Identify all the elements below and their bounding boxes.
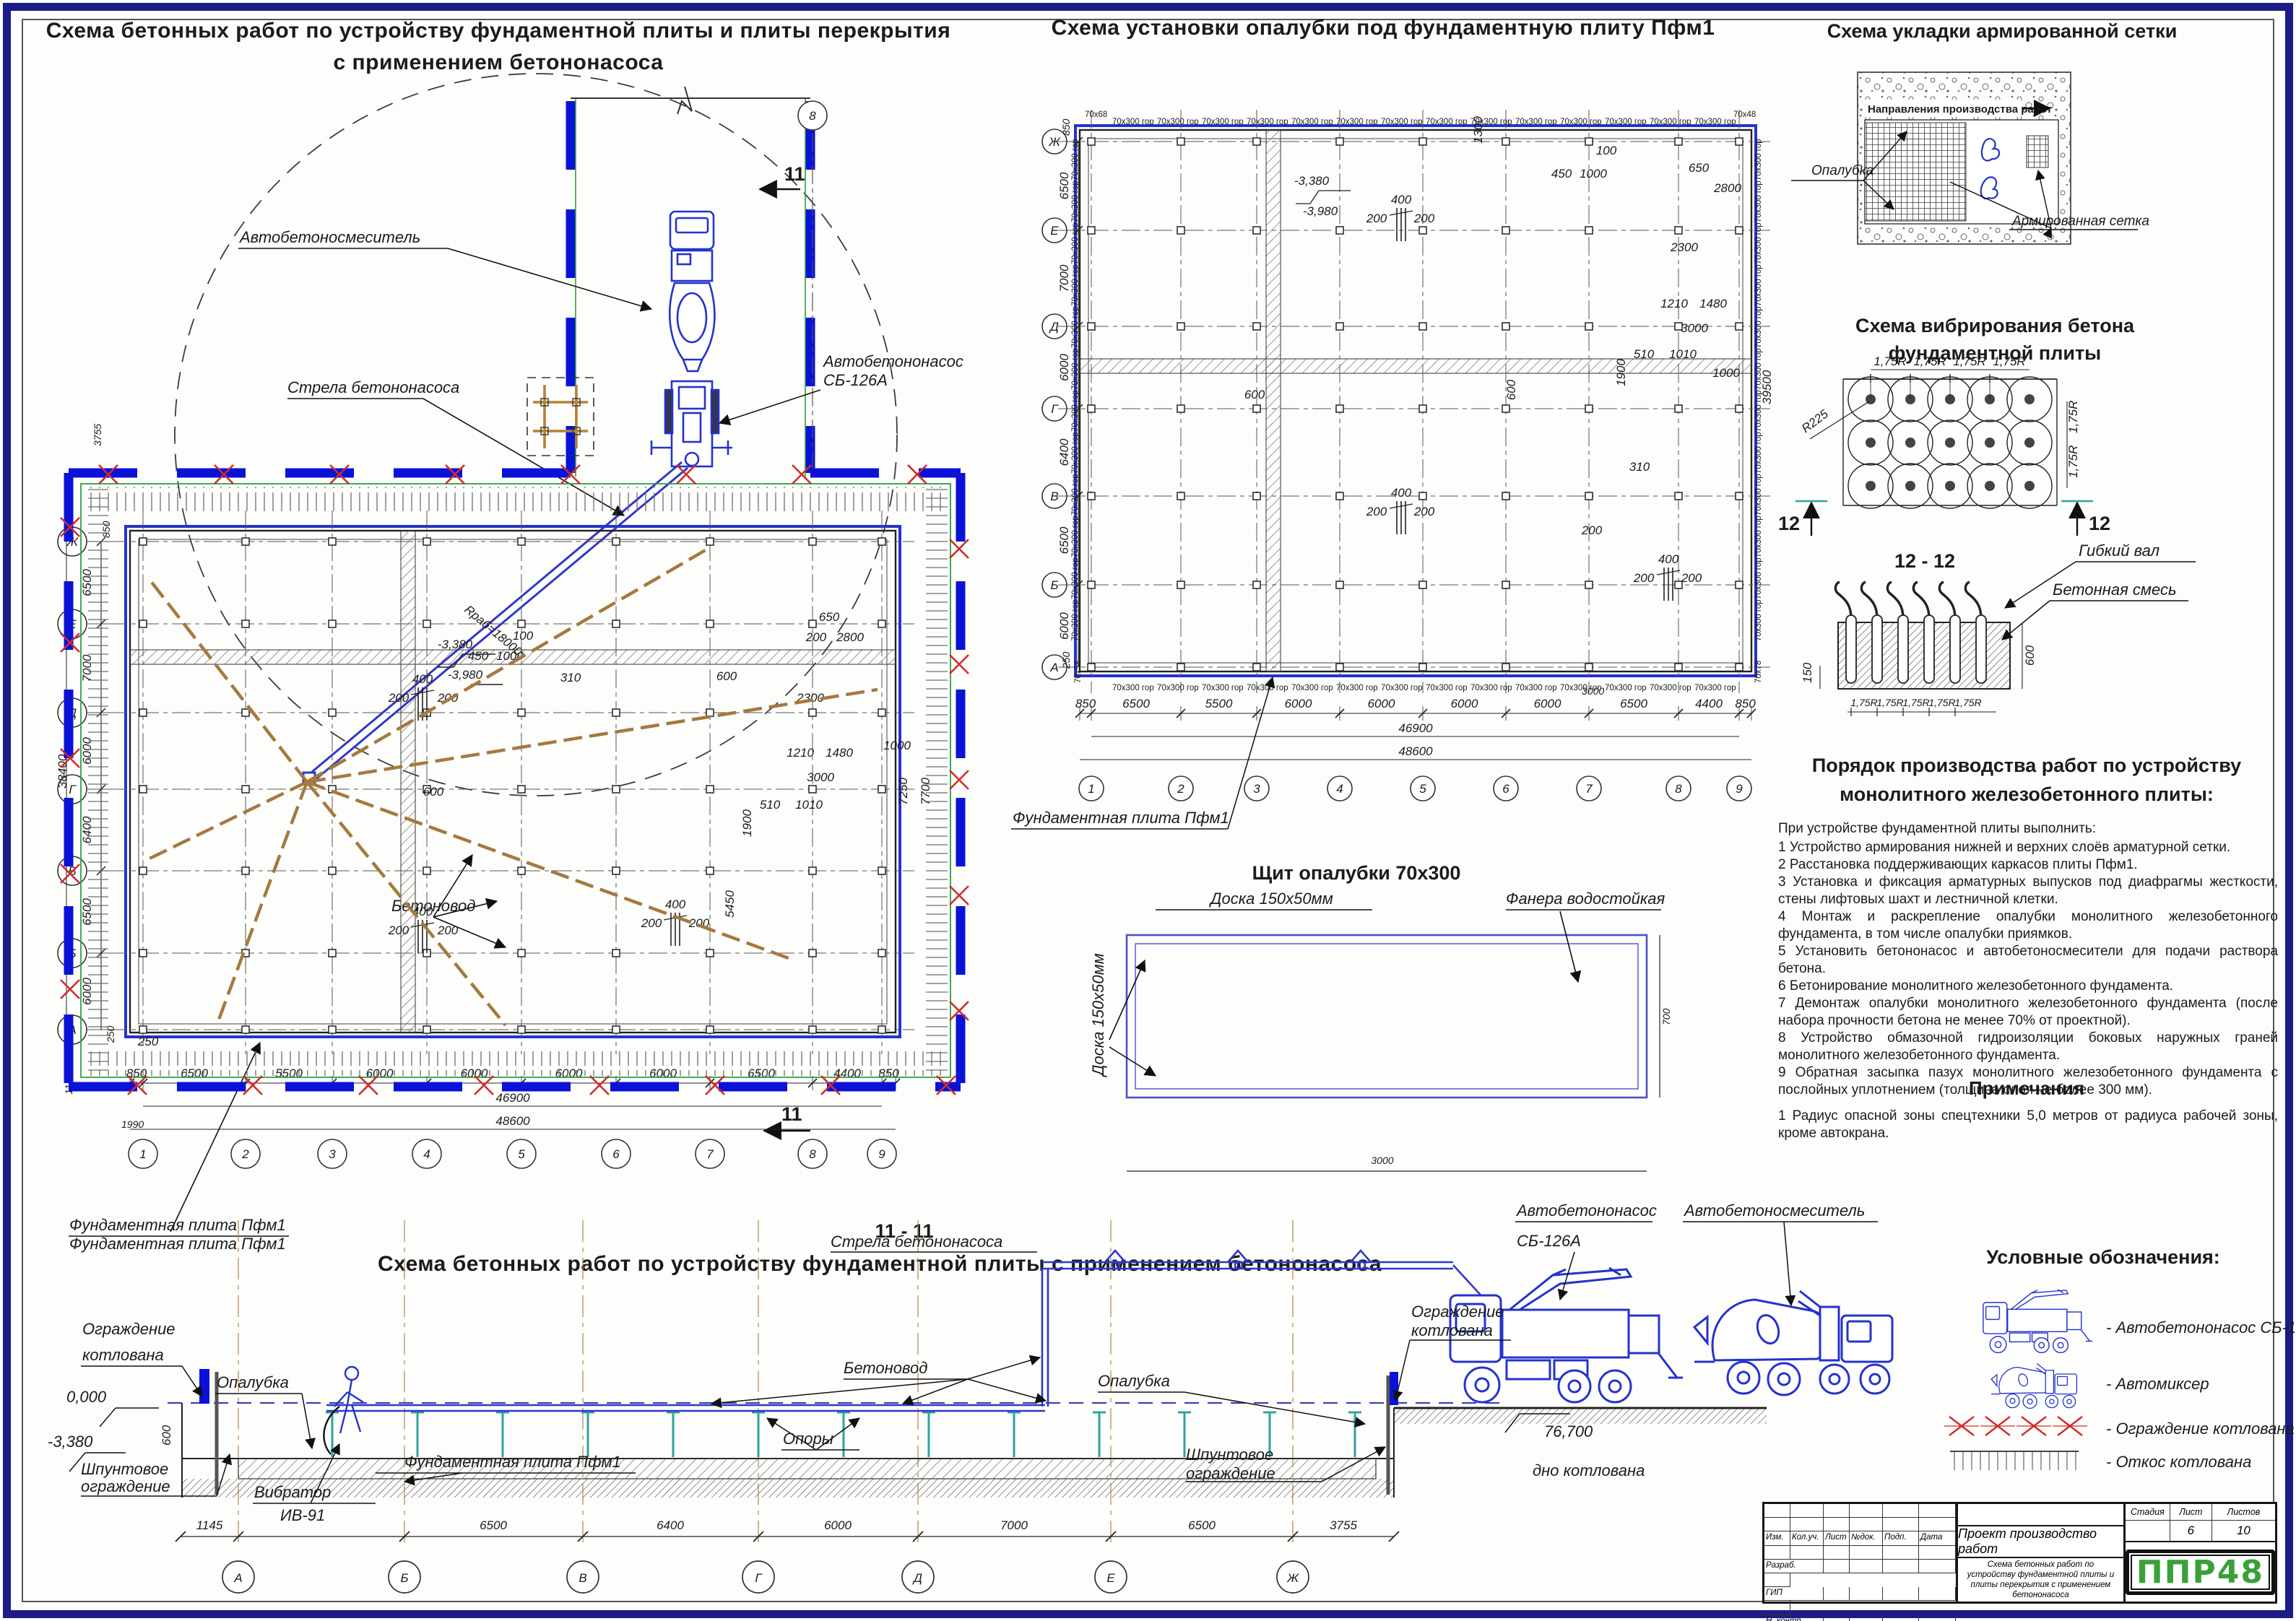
dim-label: 1480 — [1699, 297, 1727, 310]
tb-cell — [1919, 1504, 1956, 1518]
panel-detail-title: Щит опалубки 70х300 — [1252, 862, 1461, 884]
fence-x-mark — [61, 980, 79, 999]
formwork-edge-label: 70х300 гор — [1754, 432, 1763, 474]
formwork-edge-label: 70х300 гор — [1426, 118, 1468, 126]
formwork-edge-label: 70х300 гор — [1694, 684, 1736, 692]
dim-label: 70х68 — [1085, 110, 1107, 119]
dim-label: 70х58 — [1074, 661, 1083, 683]
dim-label: -3,380 — [1294, 174, 1330, 188]
section-12-12: 12 - 12 Гибкий вал Бетонная смесь 150 60… — [1801, 542, 2196, 716]
sheet-value: 6 — [2170, 1521, 2212, 1541]
dim-label: 200 — [1581, 523, 1603, 537]
section12-title: 12 - 12 — [1894, 550, 1955, 572]
formwork-edge-label: 70х300 гор — [1071, 264, 1080, 306]
formwork-edge-label: 70х300 гор — [1515, 684, 1557, 692]
dim-label: 1,75R — [1873, 355, 1906, 368]
tb-col-header: Изм. — [1764, 1531, 1790, 1545]
grid-bubble-col: 4 — [1336, 782, 1343, 796]
grid-bubble-col: 1 — [1088, 782, 1094, 796]
dim-label: 200 — [1413, 212, 1435, 225]
formwork-edge-label: 70х300 гор — [1754, 516, 1763, 557]
formwork-edge-label: 70х300 гор — [1754, 390, 1763, 432]
dim-label: 1,75R — [1902, 697, 1929, 708]
tb-cell — [1883, 1504, 1919, 1518]
tb-cell — [1919, 1560, 1956, 1573]
notes-text: 1 Радиус опасной зоны спецтехники 5,0 ме… — [1778, 1108, 2278, 1142]
formwork-edge-label: 70х300 гор — [1247, 684, 1288, 692]
mesh-scheme: Схема укладки армированной сетки Направл… — [1791, 20, 2177, 244]
dim-label: 850 — [1060, 118, 1072, 136]
work-order-item: 3 Установка и фиксация арматурных выпуск… — [1778, 874, 2278, 908]
grid-bubble-col: 4 — [423, 1147, 430, 1161]
mixer-label: Автобетоносмеситель — [238, 228, 420, 246]
dim-label: 1010 — [1669, 347, 1697, 361]
s11-formwork-left: Опалубка — [217, 1373, 289, 1391]
work-order-intro: При устройстве фундаментной плиты выполн… — [1778, 820, 2278, 838]
main-plan-title-2: с применением бетононасоса — [333, 51, 663, 74]
grid-bubble-col: 9 — [1736, 782, 1743, 796]
pit-bottom-level: 76,700 — [1544, 1422, 1593, 1440]
dim-label: 70х78 — [1754, 661, 1763, 683]
dim-label: -3,380 — [438, 638, 473, 651]
work-order-item: 6 Бетонирование монолитного железобетонн… — [1778, 978, 2278, 995]
legend-label-3: - Откос котлована — [2106, 1453, 2251, 1471]
fence-x-mark — [590, 1076, 609, 1095]
legend-label-1: - Автомиксер — [2106, 1375, 2209, 1393]
work-order-item: 5 Установить бетононасос и автобетоносме… — [1778, 943, 2278, 978]
formwork-edge-label: 70х300 гор — [1071, 139, 1080, 181]
dim-label: 1900 — [740, 809, 754, 837]
s11-pump-label-2: СБ-126А — [1517, 1232, 1581, 1250]
grid-bubble-col: 3 — [1253, 782, 1260, 796]
formwork-edge-label: 70х300 гор — [1650, 118, 1691, 126]
legend: Условные обозначения: - Автобетононасос … — [1944, 1246, 2296, 1473]
ppr48-logo: ППР48 — [2126, 1550, 2275, 1595]
tb-cell — [1883, 1615, 1919, 1621]
fence-x-mark — [950, 886, 969, 905]
mixer-truck-plan — [670, 212, 714, 371]
tb-row-label: ГИП — [1764, 1587, 1824, 1601]
dim-label: 100 — [1596, 144, 1617, 157]
formwork-edge-label: 70х300 гор — [1560, 118, 1602, 126]
vibration-title-1: Схема вибрирования бетона — [1855, 315, 2135, 336]
fence-post-left — [199, 1369, 209, 1404]
formwork-edge-label: 70х300 гор — [1754, 181, 1763, 222]
tb-cell — [1790, 1504, 1824, 1518]
dim-label: 1210 — [1660, 297, 1688, 310]
dim-label: 200 — [805, 630, 827, 644]
s11-grid-bubble: А — [233, 1571, 242, 1585]
dim-label: 650 — [1689, 161, 1710, 175]
formwork-edge-label: 70х300 гор — [1071, 181, 1080, 222]
formwork-edge-label: 70х300 гор — [1754, 306, 1763, 348]
dim-label: 7000 — [1000, 1518, 1028, 1532]
dim-label: 250 — [137, 1035, 159, 1048]
s11-mixer-label: Автобетоносмеситель — [1683, 1201, 1865, 1220]
fence-left-label-1: Ограждение — [82, 1320, 176, 1338]
legend-title: Условные обозначения: — [1986, 1246, 2220, 1268]
vibrator-label-2: ИВ-91 — [280, 1506, 325, 1524]
dim-label: 3755 — [92, 424, 103, 446]
formwork-edge-labels: 70х300 гор70х300 гор70х300 гор70х300 гор… — [1011, 110, 1763, 829]
pump-label-1: Автобетононасос — [822, 352, 963, 370]
dim-label: 450 — [1551, 167, 1572, 181]
plywood-label: Фанера водостойкая — [1506, 890, 1665, 908]
work-order-item: 4 Монтаж и раскрепление опалубки монолит… — [1778, 908, 2278, 943]
dim-label: 600 — [423, 785, 444, 799]
dim-label: 1900 — [1614, 359, 1628, 386]
dim-label: 1210 — [787, 746, 814, 760]
tb-row-label: Разраб. — [1764, 1560, 1824, 1573]
tb-cell — [1824, 1546, 1850, 1560]
vib-dim-right-2: 1,75R — [2066, 446, 2080, 478]
dim-label: 3755 — [1330, 1518, 1357, 1532]
dim-label: 1,75R — [1953, 355, 1985, 368]
grid-bubble-row: Е — [1050, 224, 1059, 238]
grid-bubble-col: 6 — [1502, 782, 1509, 796]
sheets-value: 10 — [2212, 1521, 2275, 1541]
tb-cell — [1883, 1560, 1919, 1573]
dim-label: 6000 — [1057, 354, 1071, 381]
s11-sheet1-right: Шпунтовое — [1186, 1446, 1273, 1464]
tb-cell — [1883, 1546, 1919, 1560]
section-11-11: 11 - 11 Схема бетонных работ по устройст… — [48, 1201, 1892, 1593]
grid-bubble-col: 9 — [878, 1147, 885, 1161]
formwork-edge-label: 70х300 гор — [1202, 684, 1244, 692]
grid-bubble-col: 2 — [1177, 782, 1184, 796]
dim-label: 1990 — [121, 1118, 144, 1130]
s11-fence-right-2: котлована — [1411, 1321, 1493, 1339]
title-block-project: Проект производство работ — [1958, 1526, 2123, 1558]
dim-150: 150 — [1801, 662, 1814, 683]
tb-cell — [1919, 1587, 1956, 1601]
dim-label: 600 — [1244, 388, 1265, 401]
dim-label: 200 — [641, 916, 662, 930]
dim-label: 6000 — [1057, 612, 1071, 640]
dim-label: 200 — [388, 924, 410, 937]
s11-pump-label-1: Автобетононасос — [1515, 1201, 1657, 1220]
formwork-edge-label: 70х300 гор — [1560, 684, 1602, 692]
section-11-marker-top: 11 — [784, 163, 805, 185]
grid-bubble-col: 8 — [809, 1147, 816, 1161]
mesh-grid-label: Армированная сетка — [2011, 214, 2149, 229]
work-order-title-1: Порядок производства работ по устройству — [1778, 751, 2275, 780]
dim-label: 850 — [1075, 697, 1096, 710]
work-order-item: 7 Демонтаж опалубки монолитного железобе… — [1778, 995, 2278, 1030]
sheet-header: Лист — [2170, 1504, 2212, 1520]
dim-label: -3,980 — [448, 668, 483, 682]
dim-label: 850 — [1735, 697, 1756, 710]
work-order-title-2: монолитного железобетонного плиты: — [1778, 780, 2275, 809]
dim-label: 3000 — [1681, 321, 1708, 335]
section-12-arrows — [1795, 501, 2093, 536]
tb-cell — [1824, 1560, 1850, 1573]
dim-label: 6500 — [1620, 697, 1647, 710]
work-order-text: При устройстве фундаментной плиты выполн… — [1778, 820, 2278, 1099]
boom-label: Стрела бетононасоса — [287, 378, 459, 396]
dim-label: 5450 — [723, 890, 737, 918]
formwork-edge-label: 70х300 гор — [1291, 118, 1333, 126]
formwork-plan-title: Схема установки опалубки под фундаментну… — [1052, 16, 1715, 40]
sheets-header: Листов — [2212, 1504, 2275, 1520]
s11-grid-bubble: Е — [1106, 1571, 1115, 1585]
formwork-edge-label: 70х300 гор — [1157, 684, 1199, 692]
supports-label: Опоры — [783, 1430, 833, 1448]
dim-label: 310 — [1629, 460, 1650, 474]
dim-label: 600 — [716, 669, 737, 683]
dim-label: 6000 — [1368, 697, 1395, 710]
formwork-edge-label: 70х300 гор — [1336, 684, 1378, 692]
dim-label: 400 — [665, 898, 686, 911]
panel-height-dim: 700 — [1660, 1008, 1672, 1025]
mesh-formwork-label: Опалубка — [1811, 163, 1873, 178]
tb-cell — [1850, 1587, 1883, 1601]
dim-label: 48600 — [1398, 744, 1433, 758]
mixer-truck-side — [1694, 1291, 1892, 1395]
legend-label-2: - Ограждение котлована — [2106, 1420, 2295, 1438]
dim-label: 1010 — [795, 798, 823, 812]
level-0-label: 0,000 — [66, 1388, 107, 1406]
board-top-label: Доска 150х50мм — [1208, 890, 1333, 908]
level-338-label: -3,380 — [48, 1433, 93, 1451]
grid-bubble-col: 7 — [1585, 782, 1593, 796]
formwork-edge-label: 70х300 гор — [1071, 474, 1080, 516]
grid-bubble-col8-label: 8 — [809, 109, 816, 123]
title-block-doc-title: Схема бетонных работ по устройству фунда… — [1958, 1558, 2123, 1602]
dim-label: 4400 — [1695, 697, 1723, 710]
formwork-edge-label: 70х300 гор — [1247, 118, 1288, 126]
work-order-item: 2 Расстановка поддерживающих каркасов пл… — [1778, 856, 2278, 874]
dim-label: 6500 — [1122, 697, 1150, 710]
s11-grid-bubble: В — [579, 1571, 586, 1585]
pit-bottom-label: дно котлована — [1533, 1461, 1645, 1479]
flex-shaft-label: Гибкий вал — [2079, 542, 2159, 560]
s11-sheet1-left: Шпунтовое — [81, 1460, 168, 1478]
dim-label: 7000 — [1057, 264, 1071, 292]
dim-label: 400 — [1658, 552, 1679, 566]
vibration-scheme: Схема вибрирования бетона фундаментной п… — [1778, 315, 2135, 536]
slab-label-mainplan: Фундаментная плита Пфм1 — [69, 1216, 286, 1234]
dim-label: 200 — [388, 691, 410, 705]
work-order-item: 8 Устройство обмазочной гидроизоляции бо… — [1778, 1030, 2278, 1064]
tb-cell — [1850, 1615, 1883, 1621]
dim-label: 6000 — [1451, 697, 1478, 710]
formwork-edge-label: 70х300 гор — [1291, 684, 1333, 692]
dim-label: 600 — [1504, 379, 1518, 400]
formwork-edge-label: 70х300 гор — [1071, 390, 1080, 432]
dim-label: 200 — [437, 924, 459, 937]
formwork-edge-label: 70х300 гор — [1112, 118, 1154, 126]
s11-fence-right-1: Ограждение — [1411, 1303, 1504, 1321]
dim-label: 6400 — [1057, 438, 1071, 466]
stage-header: Стадия — [2126, 1504, 2170, 1520]
formwork-edge-label: 70х300 гор — [1071, 306, 1080, 348]
legend-pump-icon — [1983, 1290, 2092, 1352]
grid-bubble-col: 1 — [139, 1147, 146, 1161]
dim-label: 100 — [513, 629, 534, 643]
title-block: Изм.Кол.уч.Лист№док.Подп.ДатаРазраб.ГИПН… — [1762, 1502, 2277, 1604]
dim-label: 1,75R — [1850, 697, 1877, 708]
tb-col-header: Кол.уч. — [1790, 1531, 1824, 1545]
vibration-radius-label: R225 — [1799, 407, 1831, 435]
tb-cell — [1850, 1546, 1883, 1560]
formwork-edge-label: 70х300 гор — [1381, 118, 1423, 126]
formwork-edge-label: 70х300 гор — [1754, 599, 1763, 641]
dim-label: 7250 — [896, 778, 910, 805]
dim-label: 400 — [1391, 193, 1412, 207]
title-block-center: Проект производство работ Схема бетонных… — [1958, 1504, 2126, 1602]
work-order-heading: Порядок производства работ по устройству… — [1778, 751, 2275, 809]
mesh-direction-label: Направления производства работ — [1868, 103, 2052, 116]
formwork-edge-label: 70х300 гор — [1071, 599, 1080, 641]
dim-label: 1480 — [826, 746, 853, 760]
s11-sheet2-right: ограждение — [1186, 1464, 1275, 1482]
grid-bubble-row: В — [1050, 490, 1058, 503]
tb-col-header: Лист — [1824, 1531, 1850, 1545]
tb-cell — [1790, 1518, 1824, 1531]
dim-label: 1000 — [883, 739, 911, 752]
panel-total-dim: 3000 — [1371, 1155, 1393, 1166]
formwork-edge-label: 70х300 гор — [1754, 474, 1763, 516]
fence-left-label-2: котлована — [82, 1346, 164, 1364]
dim-label: 38400 — [56, 754, 69, 788]
tb-cell — [1919, 1615, 1956, 1621]
notes-title: Примечания — [1778, 1077, 2275, 1100]
concrete-mix-label: Бетонная смесь — [2053, 581, 2177, 599]
tb-cell — [1883, 1518, 1919, 1531]
formwork-edge-label: 70х300 гор — [1650, 684, 1691, 692]
dim-label: 1000 — [496, 649, 524, 663]
legend-label-0: - Автобетононасос СБ-126А — [2106, 1318, 2296, 1337]
tb-cell — [1919, 1518, 1956, 1531]
dim-label: 1,75R — [1928, 697, 1955, 708]
tb-col-header: Дата — [1919, 1531, 1956, 1545]
title-block-revision-table: Изм.Кол.уч.Лист№док.Подп.ДатаРазраб.ГИПН… — [1764, 1504, 1958, 1602]
dim-label: 6000 — [1285, 697, 1312, 710]
dim-label: 46900 — [1398, 721, 1433, 735]
dim-label: 3000 — [807, 770, 834, 784]
grid-bubble-col: 5 — [518, 1147, 525, 1161]
dim-label: 510 — [1634, 347, 1655, 361]
s11-formwork-right: Опалубка — [1098, 1372, 1170, 1390]
dim-600: 600 — [2023, 645, 2037, 666]
s11-slab-top-label: Фундаментная плита Пфм1 — [69, 1235, 286, 1253]
pump-label-2: СБ-126А — [823, 371, 888, 389]
dim-label: 6500 — [1057, 526, 1071, 554]
dim-label: 200 — [437, 691, 459, 705]
dim-label: 200 — [1681, 571, 1702, 585]
dim-label: 6500 — [480, 1518, 507, 1532]
formwork-edge-label: 70х300 гор — [1202, 118, 1244, 126]
formwork-edge-label: 70х300 гор — [1470, 684, 1512, 692]
s11-grid-bubble: Б — [400, 1571, 408, 1585]
s11-boom-label: Стрела бетононасоса — [831, 1233, 1002, 1251]
formwork-edge-label: 70х300 гор — [1605, 684, 1647, 692]
tb-col-header: №док. — [1850, 1531, 1883, 1545]
formwork-edge-label: 70х300 гор — [1071, 432, 1080, 474]
s11-slab-label: Фундаментная плита Пфм1 — [404, 1453, 621, 1471]
fence-x-mark — [243, 1076, 262, 1095]
formwork-edge-label: 70х300 гор — [1071, 557, 1080, 599]
dim-label: 310 — [560, 671, 581, 685]
formwork-slab-label: Фундаментная плита Пфм1 — [1013, 809, 1229, 827]
tb-cell — [1764, 1573, 1790, 1587]
formwork-edge-label: 70х300 гор — [1694, 118, 1736, 126]
tb-cell — [1850, 1560, 1883, 1573]
grid-bubble-row: Б — [1050, 578, 1058, 592]
tb-cell — [1824, 1504, 1850, 1518]
s11-grid-bubble: Ж — [1286, 1571, 1299, 1585]
stage-value — [2126, 1521, 2170, 1541]
formwork-plan-grid: ЖЕДГВБА123456789850650055006000600060006… — [1042, 110, 1770, 801]
work-order-item: 1 Устройство армирования нижней и верхни… — [1778, 839, 2278, 856]
legend-mixer-icon — [1991, 1363, 2076, 1408]
dim-label: 2800 — [1713, 181, 1741, 195]
grid-bubble-col: 5 — [1419, 782, 1426, 796]
formwork-edge-label: 70х300 гор — [1754, 139, 1763, 181]
dim-label: 6000 — [824, 1518, 852, 1532]
ramp-top-break-line — [571, 87, 810, 114]
dim-label: 70х48 — [1733, 110, 1756, 119]
formwork-edge-label: 70х300 гор — [1515, 118, 1557, 126]
formwork-panel-detail: Щит опалубки 70х300 Доска 150х50мм Фанер… — [1089, 862, 1672, 1171]
dim-label: 510 — [760, 798, 781, 812]
formwork-edge-label: 70х300 гор — [1754, 222, 1763, 264]
tb-cell — [1764, 1546, 1790, 1560]
dim-label: 6400 — [657, 1518, 684, 1532]
s11-dim-600: 600 — [160, 1425, 173, 1446]
section-12-right: 12 — [2089, 513, 2110, 534]
s11-grid-bubble: Д — [912, 1571, 922, 1585]
dim-label: 1000 — [1580, 167, 1607, 181]
fence-x-mark — [792, 465, 811, 484]
grid-bubble-row: Д — [1049, 320, 1059, 334]
drawing-sheet: Схема бетонных работ по устройству фунда… — [0, 0, 2296, 1621]
section11-subtitle: Схема бетонных работ по устройству фунда… — [378, 1252, 1382, 1276]
tb-cell — [1824, 1587, 1850, 1601]
formwork-edge-label: 70х300 гор — [1157, 118, 1199, 126]
tb-cell — [1883, 1587, 1919, 1601]
drawing-canvas: Схема бетонных работ по устройству фунда… — [0, 0, 2296, 1621]
tb-cell — [1824, 1615, 1850, 1621]
dim-label: 250 — [1060, 651, 1072, 669]
dim-label: 1,75R — [1913, 355, 1946, 368]
tb-cell — [1850, 1518, 1883, 1531]
dim-label: 1,75R — [1876, 697, 1903, 708]
vibrator-label-1: Вибратор — [254, 1483, 331, 1501]
fence-x-mark — [950, 770, 969, 789]
dim-label: 6500 — [1057, 172, 1071, 199]
dim-label: 650 — [819, 610, 840, 624]
grid-bubble-col: 2 — [241, 1147, 249, 1161]
grid-bubble-col: 8 — [1675, 782, 1682, 796]
title-block-doc-code — [1958, 1504, 2123, 1526]
formwork-edge-label: 70х300 гор — [1754, 264, 1763, 306]
tb-cell — [1850, 1504, 1883, 1518]
grid-bubble-col: 7 — [706, 1147, 714, 1161]
tb-cell — [1764, 1504, 1790, 1518]
main-plan-title-1: Схема бетонных работ по устройству фунда… — [46, 19, 950, 43]
formwork-edge-label: 70х300 гор — [1426, 684, 1468, 692]
formwork-edge-label: 70х300 гор — [1754, 557, 1763, 599]
dim-label: 6500 — [1188, 1518, 1216, 1532]
pump-pad — [527, 378, 594, 456]
title-block-right: Стадия Лист Листов 6 10 ППР48 — [2126, 1504, 2275, 1602]
formwork-edge-label: 70х300 гор — [1112, 684, 1154, 692]
dim-label: 46900 — [495, 1091, 530, 1105]
dim-label: 400 — [412, 672, 433, 686]
formwork-edge-label: 70х300 гор — [1071, 516, 1080, 557]
